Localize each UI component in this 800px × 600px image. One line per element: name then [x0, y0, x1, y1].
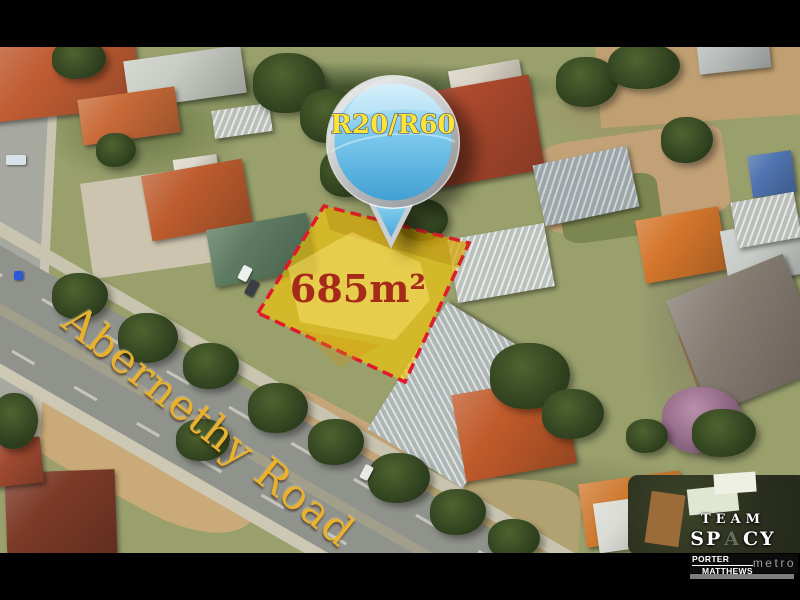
tree — [398, 199, 448, 241]
agency-name-top: PORTER — [692, 555, 753, 566]
letterbox-bottom — [0, 553, 800, 600]
site-plan-paper — [713, 472, 756, 495]
listing-image: 685m² R20/R60 Abernethy Road TEAM SPACY … — [0, 0, 800, 600]
agency-division: metro — [753, 555, 796, 572]
tree — [626, 419, 668, 453]
shed-roof — [211, 103, 272, 139]
team-branding: TEAM SPACY — [666, 512, 800, 550]
tree — [542, 389, 604, 439]
car — [6, 155, 26, 165]
tree — [96, 133, 136, 167]
pool — [747, 150, 796, 198]
tree — [692, 409, 756, 457]
letterbox-top — [0, 0, 800, 47]
tree — [488, 519, 540, 553]
team-name: SPACY — [666, 528, 800, 550]
tree — [320, 147, 376, 197]
house-roof — [635, 206, 729, 284]
house-roof — [379, 75, 545, 196]
agency-name-bottom: MATTHEWS — [692, 566, 753, 576]
agency-logo: PORTER MATTHEWS metro — [690, 554, 798, 579]
carport-roof — [447, 223, 555, 303]
aerial-photo — [0, 47, 800, 553]
team-prefix: TEAM — [666, 512, 800, 527]
tree — [300, 89, 362, 143]
road-sign — [14, 271, 23, 280]
